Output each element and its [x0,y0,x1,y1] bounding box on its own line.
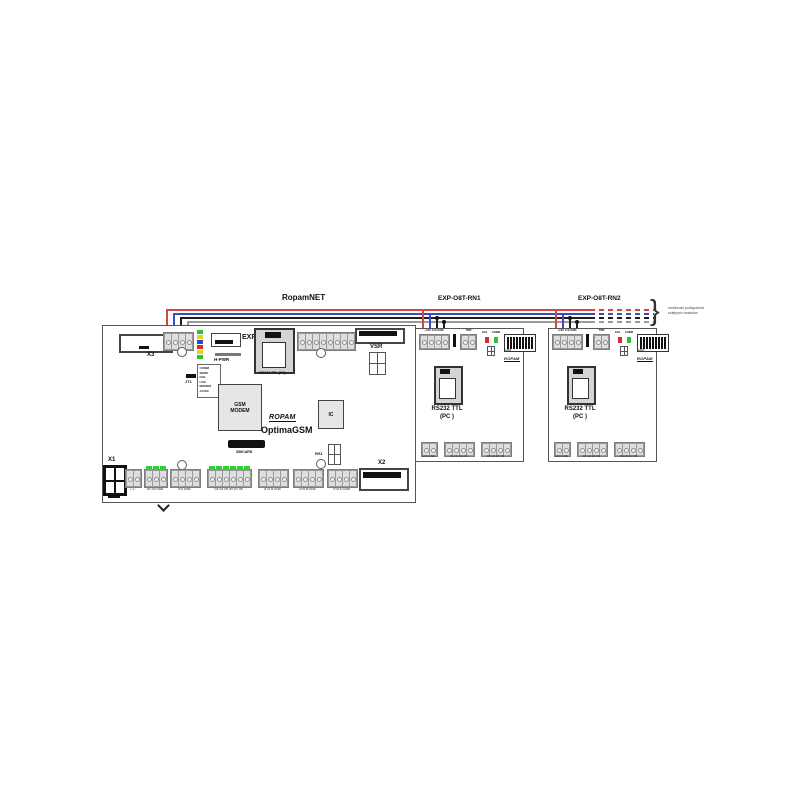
led-yellow [197,350,203,354]
fail-led-label: FAIL [482,332,487,335]
simcard-label: SIMCARD [236,451,252,455]
fail-led [485,337,489,343]
small-component [487,346,495,356]
bus-wire-b-continuation [590,317,654,319]
bus-wire-12v [166,309,590,311]
x2-connector [359,468,409,491]
rs232-window [439,378,456,399]
rs232-window [572,378,589,399]
rs232-key [573,369,583,374]
expander2-board: +12V A B GND TMP FAIL COMM ADR ROPAM RS2… [548,328,657,462]
terminal-group-label: I4 I5 I6 GND [291,488,324,491]
wiring-diagram: RopamNET EXP-O8T-RN1 EXP-O8T-RN2 } możli… [0,0,800,800]
ropam-logo: ROPAM [269,414,296,422]
x1-label: X1 [108,457,115,464]
vsr-slot [359,331,397,336]
comm-led [494,337,498,343]
component-bar [453,334,456,347]
x3-label: X3 [147,352,154,359]
terminal-group-label: IN1 GND [168,488,201,491]
rs232-label: RS232 TTL (PC) [234,372,311,376]
hpwr-label: H-PWR [214,358,229,363]
vsr-connector [355,328,405,344]
led-green [197,355,203,359]
x1-tab [108,494,120,498]
expander1-title: EXP-O8T-RN1 [438,295,481,302]
mainboard-optimagsm: X3 COMM SEND FAIL LOG MODEM AC/DC EXP [102,325,416,503]
bus-wire-gnd-continuation [590,321,654,323]
led-blue [197,340,203,344]
junction-dot [568,316,572,320]
continuation-note-line2: kolejnych modułów [668,311,704,316]
bus-wire-gnd [188,321,590,323]
exp-connector-slot [215,340,233,344]
junction-dot [442,320,446,324]
rs232-label-line2: (PC ) [416,414,478,421]
terminal-group-label: O1 O2 GND [141,488,169,491]
rs232-ttl-connector [434,366,463,405]
pre-terminals [297,332,356,351]
dip-label: ADR [505,349,511,352]
terminal-group-label: AUX GND [416,455,441,458]
gsm-modem-chip: GSM MODEM [218,384,262,431]
led-yellow [197,335,203,339]
ic-chip: IC [318,400,344,429]
x2-label: X2 [378,460,385,467]
terminal-group-label: O1 O2 O3 O4 [444,455,473,458]
expander1-board: +12V A B GND TMP FAIL COMM ADR ROPAM RS2… [415,328,524,462]
x1-terminal [103,465,127,496]
terminals-o1-o2 [144,469,168,488]
ropam-logo: ROPAM [504,356,520,362]
comm-led [627,337,631,343]
terminal-group-label: I1 I2 I3 GND [256,488,289,491]
rs1-component [328,444,341,465]
terminal-group-label: O1 O2 O3 O4 [577,455,606,458]
led-red [197,345,203,349]
bus-wire-a [174,313,590,315]
terminal-group-label: O5 O6 O7 O8 [614,455,643,458]
expander-tamper-label: TMP [460,329,477,332]
component-bar [586,334,589,347]
jt1-jumper [186,374,196,378]
dip-label: ADR [638,349,644,352]
status-led-column [197,330,203,359]
jt1-label: JT1 [185,380,192,384]
x3-key-notch [139,346,149,349]
led-green [197,330,203,334]
junction-dot [575,320,579,324]
expander-tamper-terminals [460,334,477,350]
terminals-in1 [170,469,201,488]
expander2-title: EXP-O8T-RN2 [578,295,621,302]
vsr-label: VSR [370,344,382,351]
rs232-ttl-connector [567,366,596,405]
terminals-o3-o8 [207,469,252,488]
relay-component [369,352,386,375]
fail-led-label: FAIL [615,332,620,335]
mount-hole [316,348,326,358]
bus-wire-a-continuation [590,313,654,315]
expander-bus-terms-label: +12V A B GND [417,329,451,332]
expander-tamper-label: TMP [593,329,610,332]
exp-connector [211,333,241,347]
terminal-group-label: AUX GND [549,455,574,458]
continuation-note-line1: możliwość podłączenia [668,306,704,311]
rs232-ttl-connector [254,328,295,374]
continuation-brace: } [650,297,660,326]
terminals-i4-i6 [293,469,324,488]
mount-hole [177,347,187,357]
terminal-group-label: I7 I8 AI GND [325,488,358,491]
ropam-logo: ROPAM [637,356,653,362]
bus-wire-12v-continuation [590,309,654,311]
comm-led-label: COMM [492,332,500,335]
terminals-i1-i3 [258,469,289,488]
terminals-power [125,469,142,488]
bus-wire-b [181,317,590,319]
expander-tamper-terminals [593,334,610,350]
board-title: OptimaGSM [261,426,313,436]
rs232-label-line2: (PC ) [549,414,611,421]
rs232-label-line1: RS232 TTL [549,406,611,413]
rs232-key [265,332,281,338]
terminal-group-label: O3 O4 O5 O6 O7 O8 [205,488,252,491]
mount-hole [316,459,326,469]
comm-led-label: COMM [625,332,633,335]
expander-bus-terminals [552,334,583,350]
fail-led [618,337,622,343]
terminal-group-label: O5 O6 O7 O8 [481,455,510,458]
rs232-label-line1: RS232 TTL [416,406,478,413]
rs232-key [440,369,450,374]
expander-bus-terminals [419,334,450,350]
rs1-label: RS1 [315,452,323,456]
junction-dot [435,316,439,320]
expander-bus-terms-label: +12V A B GND [550,329,584,332]
hpwr-connector [215,353,241,356]
x2-slot [363,472,401,478]
small-component [620,346,628,356]
simcard-holder [228,440,265,448]
terminals-i7-i8 [327,469,358,488]
rs232-window [262,342,286,368]
bus-label: RopamNET [282,294,325,303]
legend-line: AC/DC [200,389,219,394]
